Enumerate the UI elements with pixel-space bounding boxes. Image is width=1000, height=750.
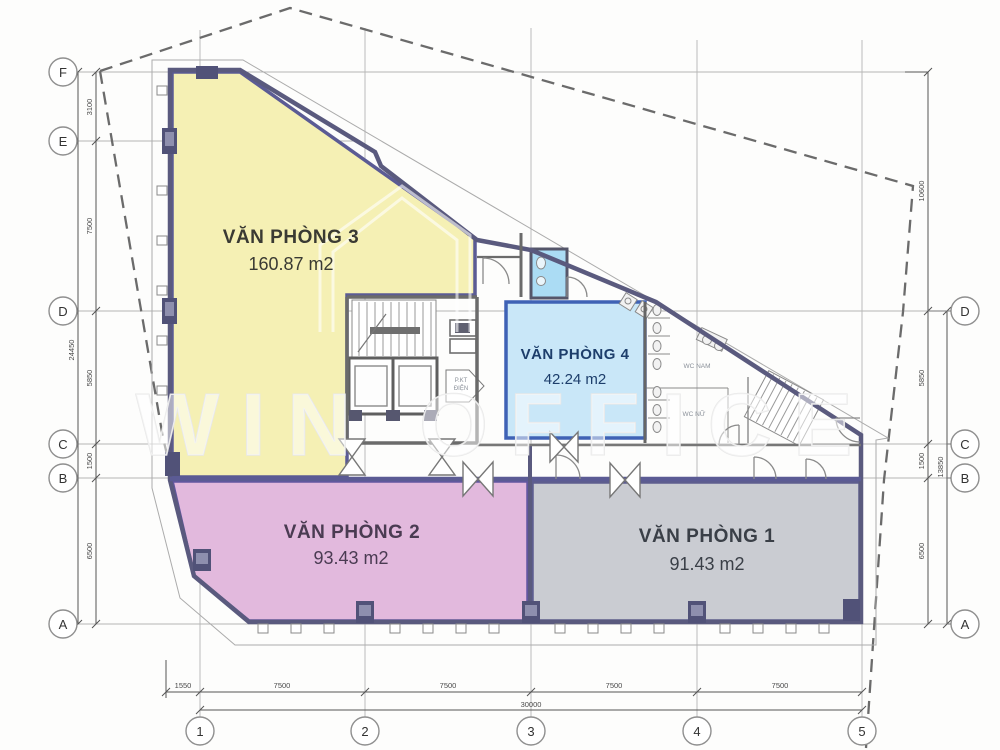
- dim-left-2: 5850: [85, 370, 94, 387]
- dim-right-3: 6500: [917, 543, 926, 560]
- dim-right-1: 5850: [917, 370, 926, 387]
- grid-label-d-right: D: [960, 304, 969, 319]
- dim-left-0: 3100: [85, 99, 94, 116]
- dim-bottom-3: 7500: [606, 681, 623, 690]
- dim-bottom-1: 7500: [274, 681, 291, 690]
- vp1-area: 91.43 m2: [669, 554, 744, 574]
- grid-label-3: 3: [527, 724, 534, 739]
- watermark-text: WIN OFFICE: [136, 375, 874, 474]
- dim-bottom-total: 30000: [521, 700, 542, 709]
- dim-bottom-0: 1550: [175, 681, 192, 690]
- floor-plan-page: P.KT ĐIỆN WC NAM WC NỮ: [0, 0, 1000, 750]
- vp2-name: VĂN PHÒNG 2: [284, 521, 420, 543]
- grid-label-b-right: B: [961, 471, 970, 486]
- vp2-area: 93.43 m2: [313, 548, 388, 568]
- dim-bottom-4: 7500: [772, 681, 789, 690]
- dim-left-1: 7500: [85, 218, 94, 235]
- vp1-name: VĂN PHÒNG 1: [639, 525, 775, 547]
- dim-right-0: 10600: [917, 181, 926, 202]
- shaft-box-2: [450, 339, 476, 353]
- grid-label-1: 1: [196, 724, 203, 739]
- grid-label-b: B: [59, 471, 68, 486]
- vp3-name: VĂN PHÒNG 3: [223, 226, 359, 248]
- dim-left-3: 1500: [85, 453, 94, 470]
- grid-label-4: 4: [693, 724, 700, 739]
- grid-label-d: D: [58, 304, 67, 319]
- grid-label-a: A: [59, 617, 68, 632]
- dim-right-total: 13850: [936, 457, 945, 478]
- grid-label-2: 2: [361, 724, 368, 739]
- dim-left-4: 6500: [85, 543, 94, 560]
- vp3-area: 160.87 m2: [248, 254, 333, 274]
- floor-plan-drawing: P.KT ĐIỆN WC NAM WC NỮ: [0, 0, 1000, 750]
- grid-label-e: E: [59, 134, 68, 149]
- grid-label-c-right: C: [960, 437, 969, 452]
- grid-label-c: C: [58, 437, 67, 452]
- vp4-area: 42.24 m2: [544, 371, 607, 388]
- dim-left-total: 24450: [67, 340, 76, 361]
- dim-right-2: 1500: [917, 453, 926, 470]
- grid-label-5: 5: [858, 724, 865, 739]
- grid-label-a-right: A: [961, 617, 970, 632]
- dim-bottom-2: 7500: [440, 681, 457, 690]
- vp4-name: VĂN PHÒNG 4: [521, 345, 630, 363]
- stair1-rail: [370, 327, 420, 334]
- room-vp1: [532, 482, 860, 621]
- wc-nam-label: WC NAM: [683, 363, 710, 370]
- grid-label-f: F: [59, 65, 67, 80]
